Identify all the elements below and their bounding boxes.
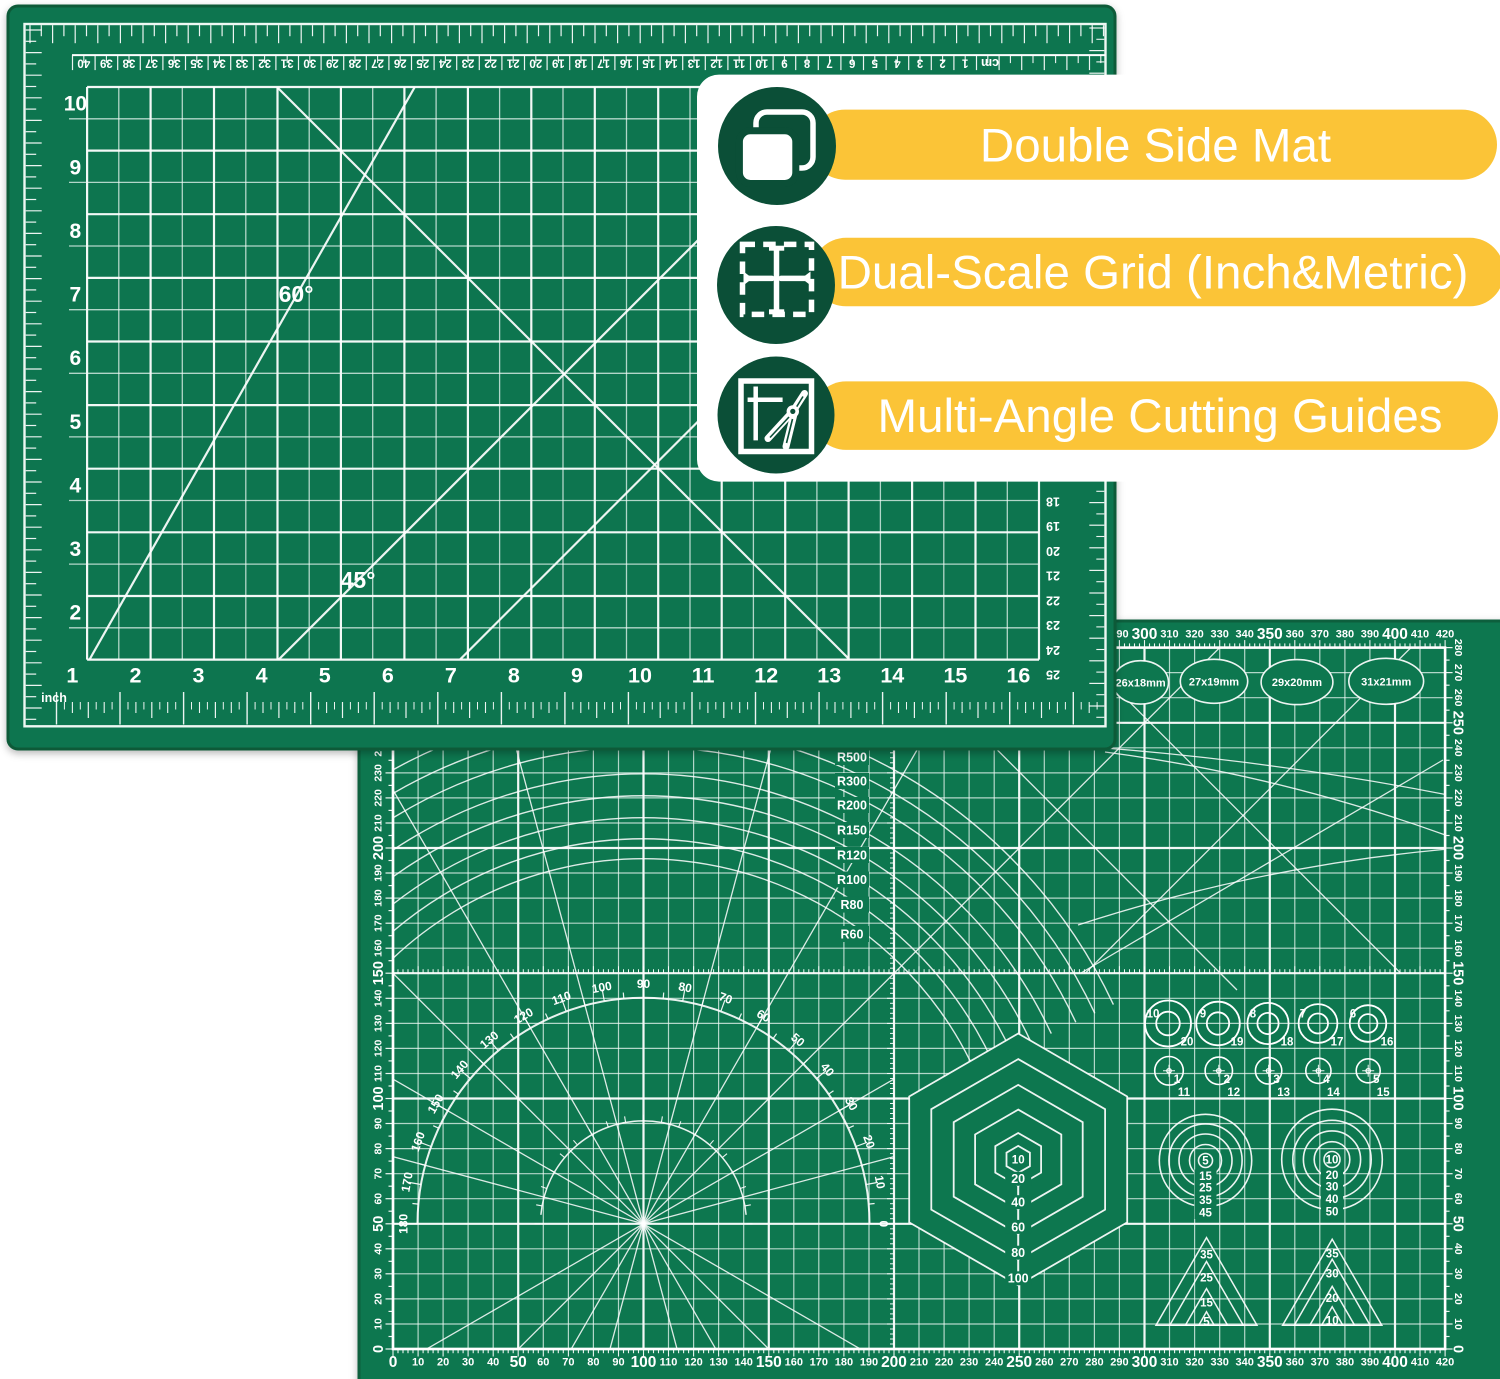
svg-text:80: 80 <box>373 1143 385 1155</box>
svg-text:100: 100 <box>1008 1272 1029 1286</box>
svg-text:8: 8 <box>508 664 520 688</box>
svg-text:19: 19 <box>1231 1037 1244 1049</box>
svg-text:360: 360 <box>1286 1356 1304 1368</box>
svg-text:35: 35 <box>1326 1249 1339 1261</box>
svg-text:Double Side Mat: Double Side Mat <box>980 119 1331 172</box>
svg-text:8: 8 <box>1250 1009 1257 1021</box>
svg-text:30: 30 <box>462 1356 474 1368</box>
svg-text:30: 30 <box>303 57 316 69</box>
svg-text:R500: R500 <box>837 750 867 764</box>
svg-text:200: 200 <box>1449 836 1465 860</box>
svg-text:40: 40 <box>1011 1196 1025 1210</box>
svg-text:220: 220 <box>1452 789 1464 807</box>
svg-text:300: 300 <box>1132 1354 1158 1371</box>
svg-text:10: 10 <box>412 1356 424 1368</box>
svg-text:4: 4 <box>894 57 901 69</box>
svg-text:0: 0 <box>877 1220 891 1227</box>
svg-text:230: 230 <box>1452 764 1464 782</box>
svg-text:16: 16 <box>1006 664 1030 688</box>
svg-text:10: 10 <box>1452 1318 1464 1330</box>
svg-text:320: 320 <box>1185 628 1203 640</box>
svg-text:26: 26 <box>394 57 407 69</box>
svg-text:7: 7 <box>70 284 82 307</box>
svg-text:10: 10 <box>64 93 87 116</box>
svg-text:15: 15 <box>1200 1297 1213 1309</box>
svg-text:140: 140 <box>1452 990 1464 1008</box>
svg-text:19: 19 <box>552 57 565 69</box>
svg-text:R80: R80 <box>841 898 864 912</box>
svg-text:2: 2 <box>70 602 82 625</box>
svg-text:13: 13 <box>817 664 841 688</box>
svg-text:Dual-Scale Grid (Inch&Metric): Dual-Scale Grid (Inch&Metric) <box>838 247 1469 300</box>
svg-text:50: 50 <box>1449 1216 1465 1232</box>
svg-text:390: 390 <box>1361 1356 1379 1368</box>
svg-text:20: 20 <box>529 57 542 69</box>
svg-text:20: 20 <box>1326 1293 1339 1305</box>
svg-text:210: 210 <box>910 1356 928 1368</box>
svg-text:25: 25 <box>1199 1183 1212 1195</box>
svg-text:160: 160 <box>785 1356 803 1368</box>
svg-text:220: 220 <box>935 1356 953 1368</box>
svg-text:200: 200 <box>881 1354 907 1371</box>
svg-text:320: 320 <box>1185 1356 1203 1368</box>
svg-text:80: 80 <box>587 1356 599 1368</box>
svg-text:40: 40 <box>1452 1243 1464 1255</box>
svg-text:14: 14 <box>1327 1087 1340 1099</box>
svg-text:180: 180 <box>1452 889 1464 907</box>
svg-text:20: 20 <box>1011 1172 1025 1186</box>
svg-text:20: 20 <box>1181 1037 1194 1049</box>
svg-text:21: 21 <box>506 57 519 69</box>
svg-text:10: 10 <box>1147 1009 1160 1021</box>
svg-text:Multi-Angle Cutting Guides: Multi-Angle Cutting Guides <box>878 390 1443 443</box>
svg-text:170: 170 <box>1452 914 1464 932</box>
svg-text:22: 22 <box>484 57 497 69</box>
svg-text:180: 180 <box>397 1213 411 1233</box>
svg-text:70: 70 <box>1452 1168 1464 1180</box>
svg-text:5: 5 <box>319 664 331 688</box>
svg-text:18: 18 <box>574 57 587 69</box>
svg-text:R300: R300 <box>837 774 867 788</box>
svg-text:35: 35 <box>190 57 203 69</box>
svg-text:60: 60 <box>373 1193 385 1205</box>
svg-text:150: 150 <box>756 1354 782 1371</box>
svg-text:34: 34 <box>212 57 225 69</box>
svg-text:20: 20 <box>1046 544 1060 558</box>
svg-text:420: 420 <box>1436 1356 1454 1368</box>
svg-text:2: 2 <box>130 664 142 688</box>
svg-text:240: 240 <box>1452 739 1464 757</box>
svg-text:22: 22 <box>1046 593 1060 607</box>
svg-text:20: 20 <box>437 1356 449 1368</box>
svg-text:70: 70 <box>373 1168 385 1180</box>
svg-text:29x20mm: 29x20mm <box>1272 677 1322 689</box>
svg-text:15: 15 <box>1377 1087 1390 1099</box>
svg-text:280: 280 <box>1452 639 1464 657</box>
svg-text:1: 1 <box>1174 1074 1181 1086</box>
svg-text:370: 370 <box>1311 1356 1329 1368</box>
svg-text:310: 310 <box>1160 628 1178 640</box>
svg-text:40: 40 <box>77 57 90 69</box>
svg-text:80: 80 <box>1011 1246 1025 1260</box>
svg-text:200: 200 <box>371 836 387 860</box>
svg-text:250: 250 <box>1449 711 1465 735</box>
svg-text:130: 130 <box>373 1014 385 1032</box>
svg-text:40: 40 <box>1326 1194 1339 1206</box>
svg-text:60°: 60° <box>279 281 314 307</box>
svg-text:140: 140 <box>735 1356 753 1368</box>
svg-text:30: 30 <box>1452 1268 1464 1280</box>
svg-text:10: 10 <box>872 1174 888 1190</box>
svg-text:380: 380 <box>1336 628 1354 640</box>
svg-text:6: 6 <box>382 664 394 688</box>
svg-text:10: 10 <box>1326 1155 1339 1167</box>
svg-text:40: 40 <box>487 1356 499 1368</box>
svg-text:45: 45 <box>1199 1208 1212 1220</box>
svg-text:27: 27 <box>371 57 384 69</box>
svg-text:230: 230 <box>960 1356 978 1368</box>
svg-text:410: 410 <box>1411 1356 1429 1368</box>
svg-text:12: 12 <box>1227 1087 1240 1099</box>
svg-text:140: 140 <box>373 989 385 1007</box>
svg-text:0: 0 <box>1449 1345 1465 1353</box>
svg-text:4: 4 <box>1323 1074 1330 1086</box>
svg-text:160: 160 <box>373 939 385 957</box>
svg-text:12: 12 <box>754 664 778 688</box>
svg-text:50: 50 <box>371 1216 387 1232</box>
svg-text:27x19mm: 27x19mm <box>1189 676 1239 688</box>
svg-text:11: 11 <box>692 664 715 688</box>
svg-text:9: 9 <box>70 156 82 179</box>
svg-text:12: 12 <box>710 57 723 69</box>
svg-text:5: 5 <box>871 57 878 69</box>
svg-text:8: 8 <box>70 220 82 243</box>
svg-text:R200: R200 <box>837 798 867 812</box>
svg-text:2: 2 <box>939 57 945 69</box>
svg-text:31: 31 <box>280 57 293 69</box>
svg-text:250: 250 <box>1006 1354 1032 1371</box>
svg-text:R150: R150 <box>837 823 867 837</box>
svg-text:3: 3 <box>1273 1074 1279 1086</box>
svg-text:R60: R60 <box>841 927 864 941</box>
svg-text:23: 23 <box>1046 618 1060 632</box>
svg-text:39: 39 <box>100 57 113 69</box>
svg-text:6: 6 <box>1350 1009 1356 1021</box>
svg-text:10: 10 <box>628 664 652 688</box>
svg-text:70: 70 <box>562 1356 574 1368</box>
svg-text:36: 36 <box>168 57 181 69</box>
svg-text:150: 150 <box>1449 961 1465 985</box>
svg-text:270: 270 <box>1060 1356 1078 1368</box>
svg-text:80: 80 <box>677 979 693 995</box>
svg-text:21: 21 <box>1046 569 1060 583</box>
svg-text:190: 190 <box>373 864 385 882</box>
svg-text:25: 25 <box>1200 1272 1213 1284</box>
svg-text:6: 6 <box>70 347 82 370</box>
svg-text:3: 3 <box>193 664 205 688</box>
svg-text:100: 100 <box>371 1086 387 1110</box>
svg-text:240: 240 <box>985 1356 1003 1368</box>
svg-text:120: 120 <box>684 1356 702 1368</box>
svg-text:5: 5 <box>70 411 82 434</box>
svg-text:340: 340 <box>1236 1356 1254 1368</box>
svg-text:300: 300 <box>1132 626 1158 643</box>
svg-text:R100: R100 <box>837 873 867 887</box>
svg-text:cm: cm <box>981 56 999 70</box>
svg-text:5: 5 <box>1202 1156 1209 1168</box>
svg-text:60: 60 <box>537 1356 549 1368</box>
svg-text:80: 80 <box>1452 1143 1464 1155</box>
svg-text:170: 170 <box>810 1356 828 1368</box>
svg-text:260: 260 <box>1035 1356 1053 1368</box>
svg-text:15: 15 <box>642 57 655 69</box>
svg-text:220: 220 <box>373 789 385 807</box>
svg-text:1: 1 <box>961 57 968 69</box>
svg-text:390: 390 <box>1361 628 1379 640</box>
svg-text:1: 1 <box>66 664 78 688</box>
svg-text:5: 5 <box>1203 1316 1210 1328</box>
svg-text:9: 9 <box>571 664 583 688</box>
svg-text:18: 18 <box>1046 494 1060 508</box>
svg-text:90: 90 <box>637 977 651 991</box>
svg-text:7: 7 <box>826 57 832 69</box>
svg-text:16: 16 <box>620 57 633 69</box>
svg-text:33: 33 <box>236 57 249 69</box>
svg-text:18: 18 <box>1281 1037 1294 1049</box>
svg-text:350: 350 <box>1257 626 1283 643</box>
svg-text:6: 6 <box>849 57 855 69</box>
svg-text:30: 30 <box>1326 1269 1339 1281</box>
svg-text:0: 0 <box>371 1345 387 1353</box>
svg-text:15: 15 <box>943 664 967 688</box>
svg-text:26x18mm: 26x18mm <box>1116 677 1166 689</box>
svg-text:190: 190 <box>860 1356 878 1368</box>
svg-text:0: 0 <box>389 1354 398 1371</box>
svg-text:90: 90 <box>373 1118 385 1130</box>
svg-text:350: 350 <box>1257 1354 1283 1371</box>
svg-text:280: 280 <box>1085 1356 1103 1368</box>
svg-text:9: 9 <box>781 57 787 69</box>
svg-text:180: 180 <box>835 1356 853 1368</box>
svg-text:38: 38 <box>122 57 135 69</box>
svg-text:32: 32 <box>258 57 271 69</box>
svg-text:10: 10 <box>373 1318 385 1330</box>
svg-text:4: 4 <box>70 474 82 497</box>
svg-text:120: 120 <box>373 1039 385 1057</box>
svg-text:23: 23 <box>462 57 475 69</box>
svg-text:3: 3 <box>70 538 82 561</box>
svg-text:28: 28 <box>348 57 361 69</box>
svg-text:17: 17 <box>1331 1037 1344 1049</box>
svg-text:24: 24 <box>438 57 451 69</box>
svg-text:360: 360 <box>1286 628 1304 640</box>
svg-text:160: 160 <box>1452 939 1464 957</box>
svg-text:330: 330 <box>1211 1356 1229 1368</box>
svg-text:270: 270 <box>1452 664 1464 682</box>
svg-text:130: 130 <box>709 1356 727 1368</box>
svg-text:11: 11 <box>1178 1087 1191 1099</box>
svg-text:30: 30 <box>373 1268 385 1280</box>
svg-text:230: 230 <box>373 764 385 782</box>
svg-text:420: 420 <box>1436 628 1454 640</box>
svg-text:180: 180 <box>373 889 385 907</box>
svg-text:210: 210 <box>1452 814 1464 832</box>
svg-text:90: 90 <box>612 1356 624 1368</box>
svg-text:13: 13 <box>1277 1087 1290 1099</box>
svg-text:10: 10 <box>1012 1155 1025 1167</box>
svg-text:19: 19 <box>1046 519 1060 533</box>
svg-text:60: 60 <box>1452 1193 1464 1205</box>
svg-text:14: 14 <box>880 664 904 688</box>
svg-text:400: 400 <box>1382 626 1408 643</box>
svg-text:30: 30 <box>1326 1182 1339 1194</box>
svg-text:210: 210 <box>373 814 385 832</box>
svg-text:260: 260 <box>1452 689 1464 707</box>
svg-text:16: 16 <box>1381 1037 1394 1049</box>
svg-text:20: 20 <box>1452 1293 1464 1305</box>
svg-text:150: 150 <box>371 961 387 985</box>
svg-text:40: 40 <box>373 1243 385 1255</box>
svg-text:290: 290 <box>1110 1356 1128 1368</box>
svg-text:35: 35 <box>1200 1250 1213 1262</box>
svg-text:10: 10 <box>1326 1315 1339 1327</box>
svg-text:2: 2 <box>1224 1074 1230 1086</box>
svg-text:340: 340 <box>1236 628 1254 640</box>
svg-text:110: 110 <box>373 1065 385 1082</box>
svg-text:35: 35 <box>1199 1195 1212 1207</box>
svg-text:inch: inch <box>41 691 67 705</box>
svg-text:13: 13 <box>688 57 701 69</box>
svg-text:10: 10 <box>755 57 768 69</box>
svg-text:120: 120 <box>1452 1040 1464 1058</box>
svg-text:R120: R120 <box>837 848 867 862</box>
svg-text:7: 7 <box>445 664 457 688</box>
svg-text:11: 11 <box>733 57 746 69</box>
svg-text:410: 410 <box>1411 628 1429 640</box>
svg-text:380: 380 <box>1336 1356 1354 1368</box>
svg-text:400: 400 <box>1382 1354 1408 1371</box>
svg-text:25: 25 <box>416 57 429 69</box>
svg-text:50: 50 <box>510 1354 527 1371</box>
svg-text:14: 14 <box>664 57 677 69</box>
svg-text:90: 90 <box>1452 1118 1464 1130</box>
svg-text:310: 310 <box>1160 1356 1178 1368</box>
svg-text:4: 4 <box>256 664 268 688</box>
svg-text:110: 110 <box>660 1356 678 1368</box>
svg-text:9: 9 <box>1200 1009 1206 1021</box>
svg-text:170: 170 <box>373 914 385 932</box>
svg-text:31x21mm: 31x21mm <box>1361 676 1411 688</box>
svg-text:130: 130 <box>1452 1015 1464 1033</box>
svg-text:17: 17 <box>597 57 610 69</box>
svg-text:100: 100 <box>631 1354 657 1371</box>
svg-text:7: 7 <box>1300 1009 1306 1021</box>
svg-text:3: 3 <box>917 57 923 69</box>
svg-text:37: 37 <box>145 57 158 69</box>
svg-text:45°: 45° <box>341 567 376 593</box>
svg-text:24: 24 <box>1046 643 1060 657</box>
svg-text:50: 50 <box>1326 1207 1339 1219</box>
svg-text:190: 190 <box>1452 864 1464 882</box>
svg-text:330: 330 <box>1211 628 1229 640</box>
svg-text:100: 100 <box>1449 1086 1465 1110</box>
svg-text:8: 8 <box>803 57 810 69</box>
svg-text:5: 5 <box>1373 1074 1380 1086</box>
svg-text:20: 20 <box>373 1293 385 1305</box>
svg-text:60: 60 <box>1011 1220 1025 1234</box>
svg-text:370: 370 <box>1311 628 1329 640</box>
svg-text:110: 110 <box>1452 1065 1464 1082</box>
svg-text:25: 25 <box>1046 668 1060 682</box>
svg-text:29: 29 <box>326 57 339 69</box>
